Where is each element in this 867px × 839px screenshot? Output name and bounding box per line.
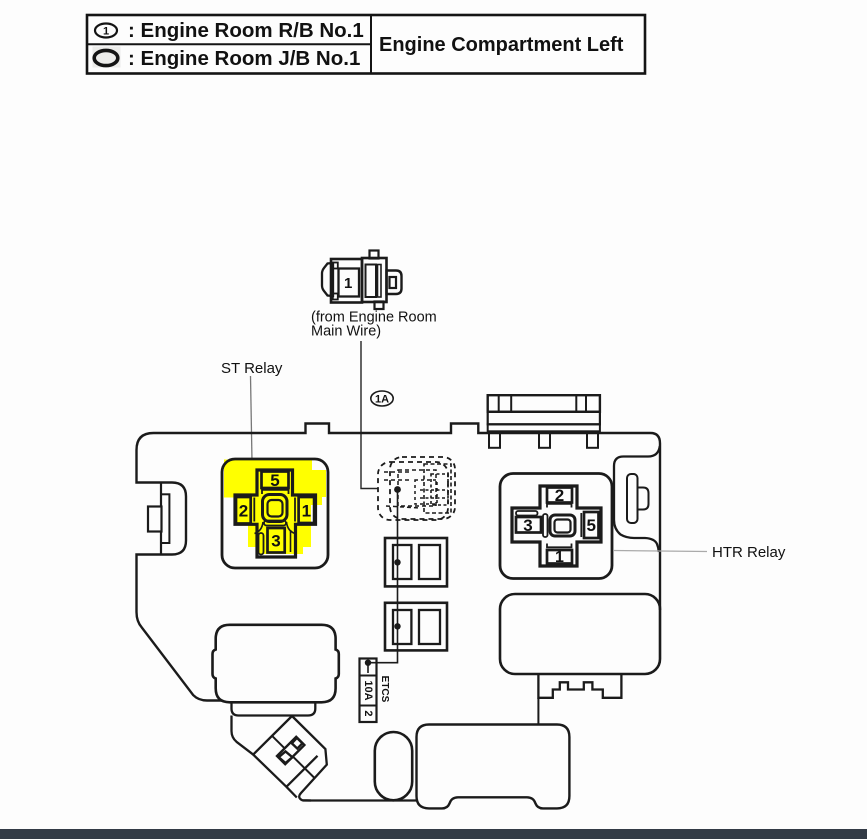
svg-text:1A: 1A — [375, 394, 389, 406]
svg-text:Main Wire): Main Wire) — [311, 324, 381, 340]
svg-text:1: 1 — [555, 549, 564, 566]
svg-text:: Engine Room R/B No.1: : Engine Room R/B No.1 — [128, 19, 364, 42]
svg-text:Engine Compartment Left: Engine Compartment Left — [379, 34, 624, 56]
svg-text:5: 5 — [270, 471, 279, 490]
svg-text:1: 1 — [344, 275, 352, 292]
svg-text:3: 3 — [271, 532, 280, 551]
svg-text:HTR Relay: HTR Relay — [712, 544, 786, 561]
svg-text:ETCS: ETCS — [379, 676, 390, 703]
svg-text:2: 2 — [362, 710, 374, 716]
svg-text:: Engine Room J/B No.1: : Engine Room J/B No.1 — [128, 47, 360, 70]
svg-text:ST Relay: ST Relay — [221, 360, 283, 377]
svg-text:2: 2 — [555, 486, 564, 505]
svg-text:3: 3 — [523, 516, 532, 535]
svg-text:10A: 10A — [362, 680, 374, 700]
svg-text:1: 1 — [103, 26, 109, 38]
svg-text:2: 2 — [239, 502, 248, 521]
svg-text:1: 1 — [302, 502, 311, 521]
svg-text:5: 5 — [586, 516, 595, 535]
